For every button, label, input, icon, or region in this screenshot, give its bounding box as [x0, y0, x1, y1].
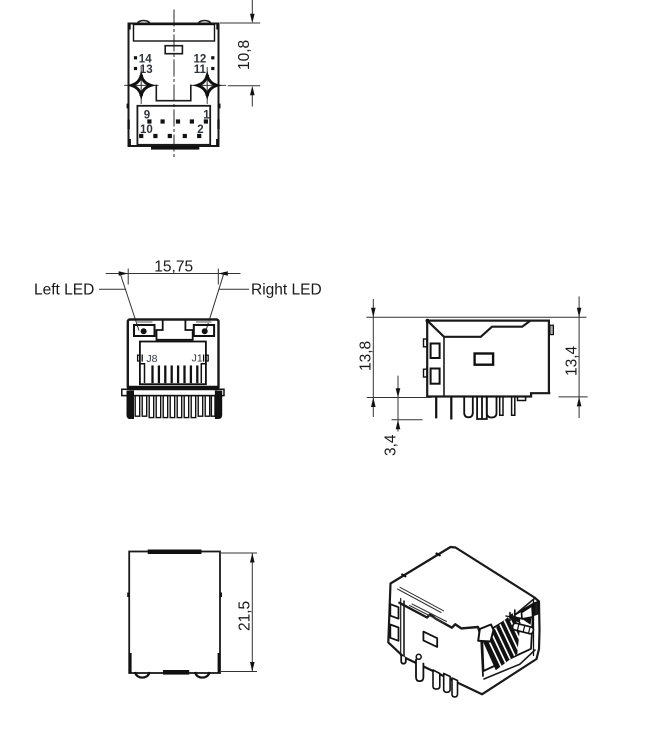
svg-text:10,8: 10,8 [236, 40, 253, 70]
svg-text:1: 1 [203, 110, 210, 122]
svg-text:J1: J1 [192, 353, 203, 365]
svg-text:21,5: 21,5 [237, 601, 254, 631]
svg-text:2: 2 [197, 124, 203, 136]
svg-text:9: 9 [144, 110, 150, 122]
svg-text:3,4: 3,4 [383, 434, 400, 456]
svg-text:10: 10 [140, 124, 153, 136]
svg-text:15,75: 15,75 [154, 259, 193, 276]
svg-text:Left LED: Left LED [34, 282, 94, 299]
svg-text:Right LED: Right LED [251, 282, 322, 299]
svg-text:13,4: 13,4 [564, 345, 581, 376]
svg-text:13,8: 13,8 [358, 341, 375, 371]
svg-text:11: 11 [194, 64, 207, 76]
svg-text:J8: J8 [146, 353, 157, 365]
